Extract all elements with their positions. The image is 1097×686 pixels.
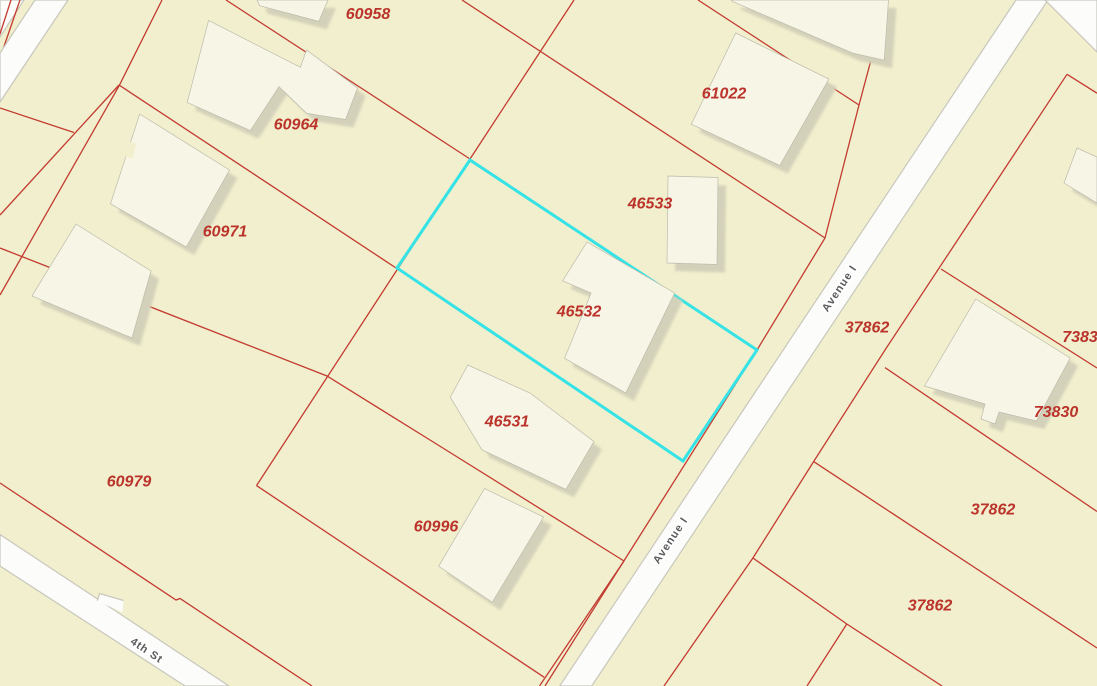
svg-text:60996: 60996	[414, 519, 459, 536]
svg-text:37862: 37862	[908, 598, 953, 615]
svg-text:60979: 60979	[107, 474, 152, 491]
svg-text:60964: 60964	[274, 117, 319, 134]
svg-text:7383: 7383	[1062, 329, 1097, 346]
svg-text:46532: 46532	[556, 304, 602, 321]
svg-text:37862: 37862	[845, 320, 890, 337]
svg-text:73830: 73830	[1034, 404, 1079, 421]
svg-text:60971: 60971	[203, 224, 248, 241]
svg-text:60958: 60958	[346, 6, 391, 23]
svg-text:37862: 37862	[971, 502, 1016, 519]
svg-text:61022: 61022	[702, 86, 747, 103]
svg-text:46531: 46531	[484, 414, 530, 431]
svg-text:46533: 46533	[627, 196, 673, 213]
